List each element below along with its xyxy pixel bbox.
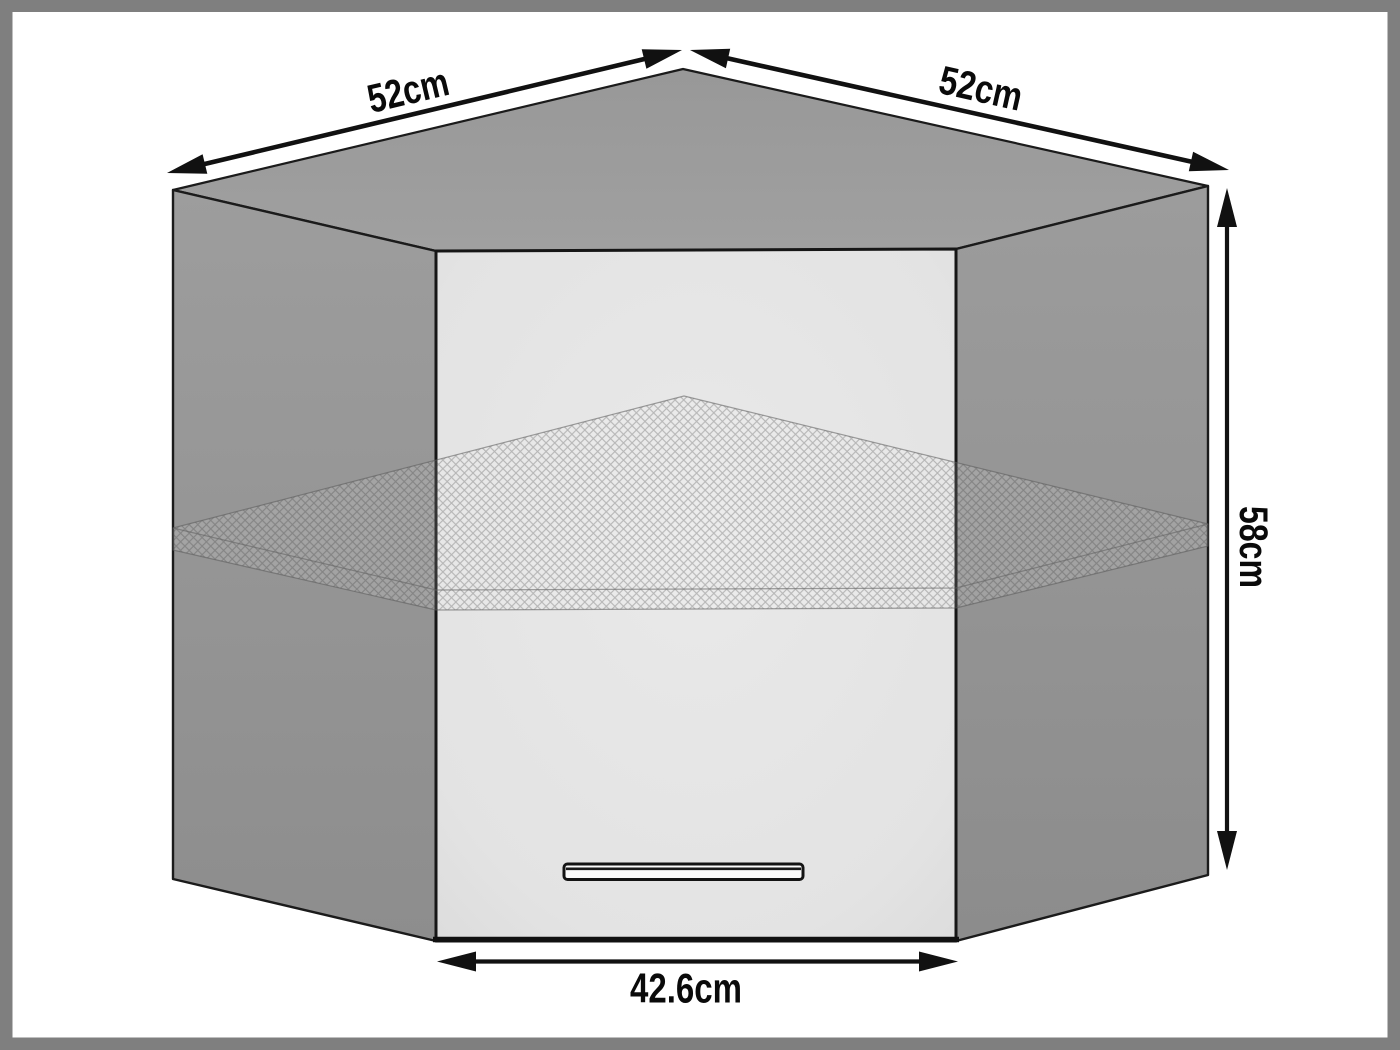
svg-text:42.6cm: 42.6cm: [630, 965, 742, 1012]
svg-text:58cm: 58cm: [1231, 506, 1275, 588]
